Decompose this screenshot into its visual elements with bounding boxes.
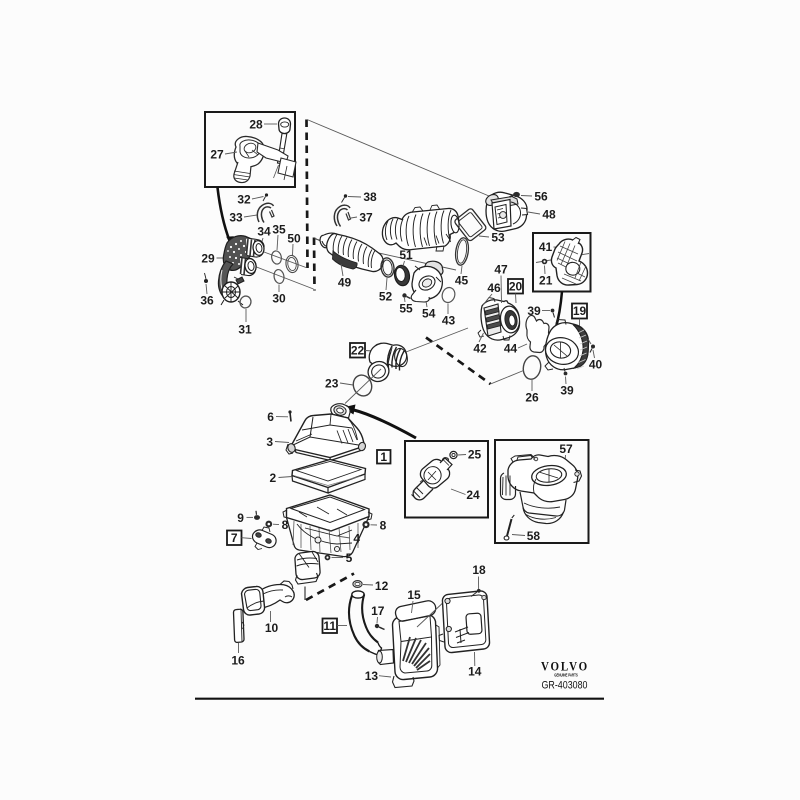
svg-text:40: 40	[589, 358, 603, 372]
svg-text:37: 37	[359, 211, 373, 225]
svg-text:2: 2	[270, 471, 277, 485]
svg-text:34: 34	[257, 225, 271, 239]
svg-text:42: 42	[473, 342, 487, 356]
svg-text:1: 1	[380, 450, 387, 464]
svg-text:14: 14	[468, 665, 482, 679]
svg-text:4: 4	[353, 532, 360, 546]
svg-text:38: 38	[363, 190, 377, 204]
svg-text:30: 30	[272, 292, 286, 306]
svg-text:13: 13	[365, 669, 379, 683]
svg-text:23: 23	[325, 377, 339, 391]
svg-text:33: 33	[229, 211, 243, 225]
svg-text:58: 58	[527, 529, 541, 543]
svg-text:VOLVO: VOLVO	[541, 659, 589, 674]
svg-text:50: 50	[287, 232, 301, 246]
svg-text:15: 15	[407, 588, 421, 602]
svg-text:29: 29	[201, 252, 215, 266]
svg-text:52: 52	[379, 290, 393, 304]
svg-text:56: 56	[534, 190, 548, 204]
svg-text:27: 27	[210, 148, 224, 162]
svg-text:54: 54	[422, 307, 436, 321]
svg-text:6: 6	[267, 410, 274, 424]
svg-text:36: 36	[200, 294, 214, 308]
svg-text:32: 32	[237, 193, 251, 207]
svg-text:43: 43	[442, 314, 456, 328]
svg-text:7: 7	[231, 531, 238, 545]
svg-text:49: 49	[338, 276, 352, 290]
svg-text:53: 53	[491, 231, 505, 245]
svg-text:12: 12	[375, 579, 389, 593]
svg-text:45: 45	[455, 274, 469, 288]
svg-text:44: 44	[504, 342, 518, 356]
svg-text:31: 31	[238, 323, 252, 337]
svg-text:47: 47	[494, 263, 508, 277]
svg-text:20: 20	[509, 280, 523, 294]
svg-text:GR-403080: GR-403080	[542, 680, 588, 692]
svg-text:19: 19	[573, 304, 587, 318]
svg-text:9: 9	[237, 511, 244, 525]
svg-text:39: 39	[527, 304, 541, 318]
svg-text:39: 39	[560, 384, 574, 398]
svg-text:48: 48	[542, 208, 556, 222]
svg-text:GENUINE PARTS: GENUINE PARTS	[554, 673, 578, 678]
svg-text:3: 3	[266, 435, 273, 449]
svg-text:8: 8	[380, 519, 387, 533]
svg-text:24: 24	[466, 488, 480, 502]
svg-text:26: 26	[525, 391, 539, 405]
svg-text:22: 22	[351, 344, 365, 358]
svg-text:57: 57	[559, 442, 573, 456]
svg-text:8: 8	[282, 518, 289, 532]
svg-text:17: 17	[371, 604, 385, 618]
svg-text:5: 5	[346, 551, 353, 565]
svg-text:35: 35	[272, 223, 286, 237]
svg-text:28: 28	[249, 118, 263, 132]
svg-text:41: 41	[539, 240, 553, 254]
svg-text:11: 11	[323, 619, 336, 633]
svg-text:55: 55	[399, 302, 413, 316]
svg-text:21: 21	[539, 274, 553, 288]
svg-text:46: 46	[487, 281, 501, 295]
svg-text:10: 10	[265, 621, 279, 635]
svg-text:18: 18	[472, 563, 486, 577]
svg-text:25: 25	[468, 448, 482, 462]
svg-text:16: 16	[231, 654, 245, 668]
